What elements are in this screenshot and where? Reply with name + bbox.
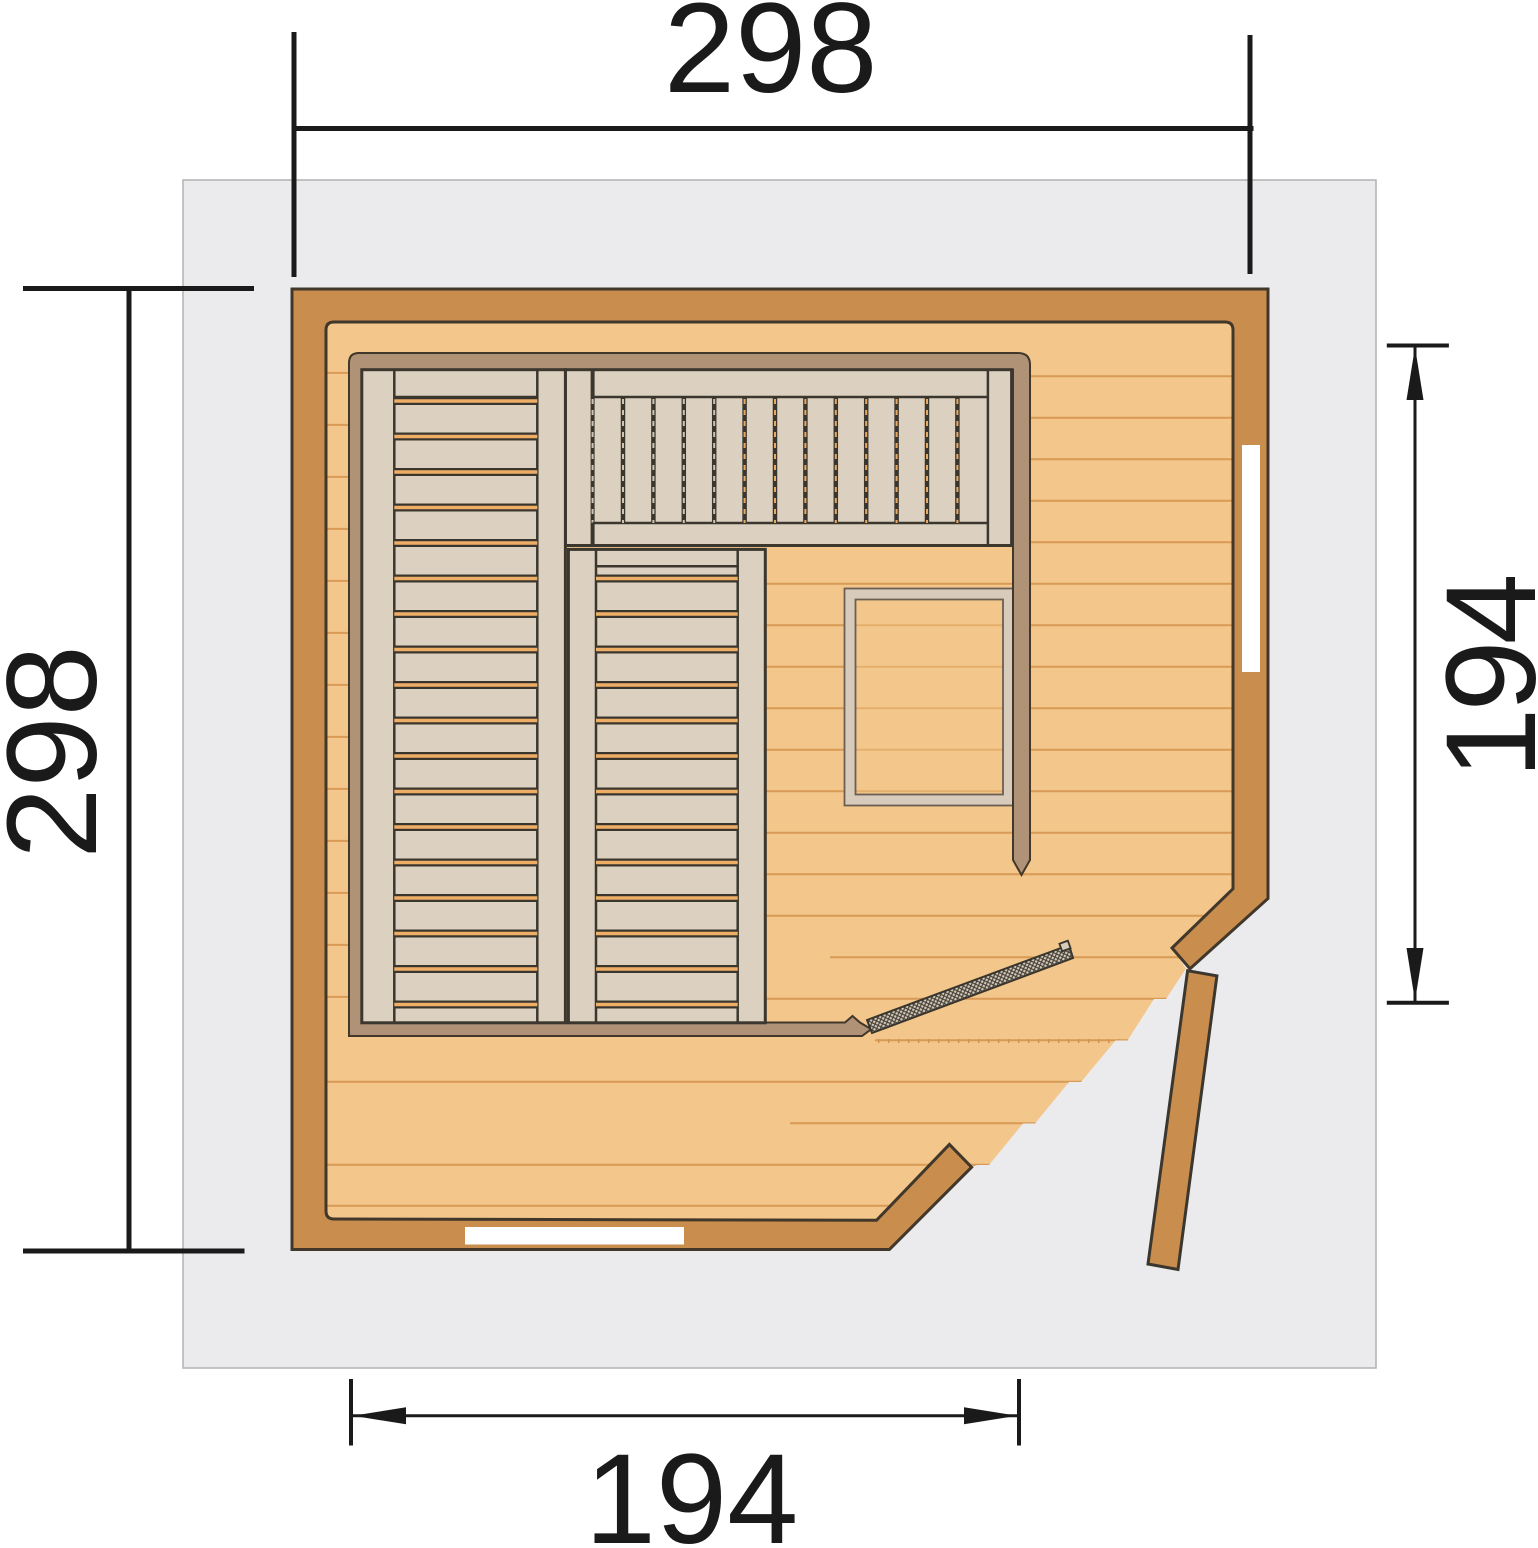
svg-text:298: 298 [664,0,878,120]
svg-text:298: 298 [0,645,124,859]
svg-text:194: 194 [1420,576,1538,778]
svg-text:194: 194 [585,1428,799,1548]
